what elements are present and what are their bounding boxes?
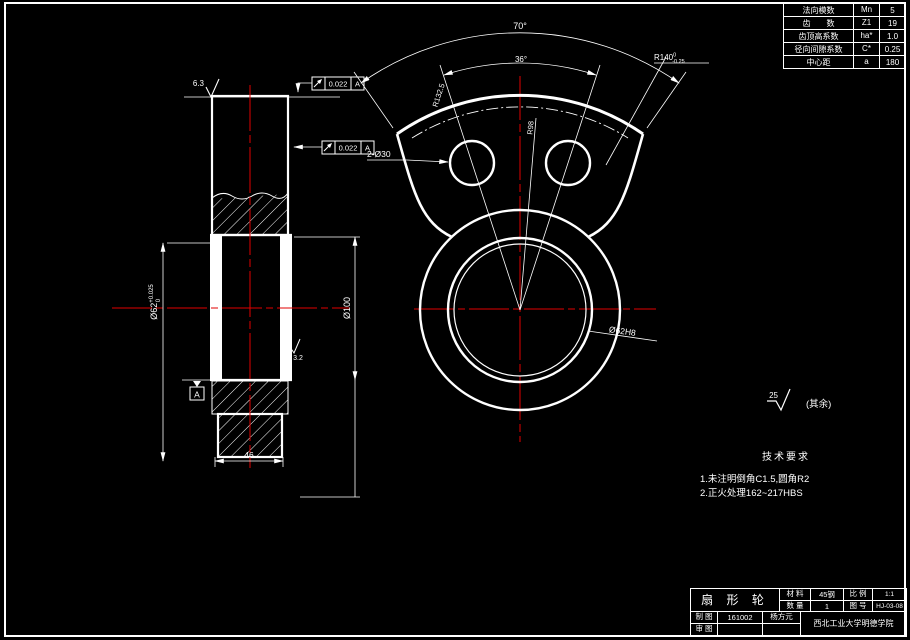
quantity-label: 数 量 <box>780 601 810 611</box>
param-symbol: Z1 <box>853 17 880 29</box>
table-row: 法向模数Mn5 <box>784 4 905 17</box>
table-row: 齿顶高系数ha*1.0 <box>784 30 905 43</box>
runout-frame-2: 0.022 A <box>294 141 374 154</box>
param-value: 180 <box>880 57 905 68</box>
param-value: 5 <box>880 5 905 16</box>
drawing-canvas: Ø62+0.0250 Ø100 46 6.3 3.2 <box>0 0 910 640</box>
tech-req-heading: 技术要求 <box>762 448 905 463</box>
param-symbol: C* <box>853 43 880 55</box>
surface-note-scope: (其余) <box>806 398 831 410</box>
radial-line <box>354 72 393 128</box>
tech-req-item: 1.未注明倒角C1.5,圆角R2 <box>700 473 905 487</box>
drawing-no-value: HJ-03-08 <box>872 601 906 612</box>
param-symbol: a <box>853 56 880 68</box>
radial-line <box>520 65 600 310</box>
runout1-datum: A <box>355 80 360 89</box>
drawing-no-label: 图 号 <box>844 601 872 611</box>
dim-angle-inner: 36° <box>515 55 527 64</box>
roughness-icon <box>206 79 219 97</box>
scale-value: 1:1 <box>872 589 906 600</box>
dim-hub-label: Ø100 <box>342 297 352 319</box>
drafter-name: 杨方元 <box>763 612 800 622</box>
checker-label: 审 图 <box>691 624 717 634</box>
param-value: 0.25 <box>880 44 905 55</box>
gear-parameter-table: 法向模数Mn5 齿 数Z119 齿顶高系数ha*1.0 径向间隙系数C*0.25… <box>783 3 906 69</box>
sector-right-edge <box>588 134 643 237</box>
param-label: 法向模数 <box>784 5 853 16</box>
runout-frame-1: 0.022 A <box>298 77 364 92</box>
table-row: 齿 数Z119 <box>784 17 905 30</box>
param-label: 齿 数 <box>784 18 853 29</box>
material-value: 45钢 <box>810 589 844 600</box>
sector-left-edge <box>397 134 452 237</box>
drafter-id: 161002 <box>717 612 763 623</box>
radial-line <box>440 65 520 310</box>
runout2-value: 0.022 <box>339 144 358 153</box>
dim-pitch-radius: R132.5 <box>431 82 447 108</box>
param-label: 中心距 <box>784 57 853 68</box>
material-label: 材 料 <box>780 589 810 599</box>
param-value: 19 <box>880 18 905 29</box>
param-symbol: Mn <box>853 4 880 16</box>
front-view: 70° 36° R1400-0.25 R132.5 R98 2-Ø30 Ø62H… <box>354 21 709 442</box>
surface-note-value: 25 <box>769 391 778 400</box>
circular-runout-icon <box>314 79 322 87</box>
datum-flag: A <box>182 380 212 400</box>
dim-width-label: 46 <box>244 450 254 460</box>
side-view: Ø62+0.0250 Ø100 46 6.3 3.2 <box>112 77 374 497</box>
param-label: 径向间隙系数 <box>784 44 853 55</box>
table-row: 中心距a180 <box>784 56 905 68</box>
organization-name: 西北工业大学明德学院 <box>801 612 906 635</box>
quantity-value: 1 <box>810 601 844 612</box>
dim-hole-circle-radius: R98 <box>525 121 535 135</box>
roughness-bore-label: 3.2 <box>293 355 303 362</box>
dim-arc-36 <box>444 63 596 75</box>
radial-line <box>606 57 666 165</box>
tech-req-item: 2.正火处理162~217HBS <box>700 487 905 501</box>
drafter-label: 制 图 <box>691 612 717 622</box>
title-block: 扇 形 轮 材 料 45钢 比 例 1:1 数 量 1 图 号 HJ-03-08 <box>690 588 907 637</box>
surface-note: 25 (其余) <box>767 389 831 410</box>
param-label: 齿顶高系数 <box>784 31 853 42</box>
cad-drawing-sheet: Ø62+0.0250 Ø100 46 6.3 3.2 <box>0 0 910 640</box>
dim-bore-front: Ø62H8 <box>608 324 636 338</box>
dim-bore-side-label: Ø62+0.0250 <box>149 284 162 320</box>
scale-label: 比 例 <box>844 589 872 599</box>
dim-holes: 2-Ø30 <box>367 149 391 159</box>
circular-runout-icon <box>324 143 332 151</box>
table-row: 径向间隙系数C*0.25 <box>784 43 905 56</box>
param-value: 1.0 <box>880 31 905 42</box>
roughness-top-label: 6.3 <box>193 79 205 88</box>
param-symbol: ha* <box>853 30 880 42</box>
radial-line <box>520 118 536 310</box>
part-name: 扇 形 轮 <box>691 589 780 611</box>
technical-requirements: 技术要求 1.未注明倒角C1.5,圆角R2 2.正火处理162~217HBS <box>700 448 905 501</box>
leader-line <box>407 160 448 162</box>
checker-id <box>717 624 763 636</box>
runout1-value: 0.022 <box>329 80 348 89</box>
datum-label: A <box>194 390 200 400</box>
dim-angle-outer: 70° <box>513 21 527 31</box>
